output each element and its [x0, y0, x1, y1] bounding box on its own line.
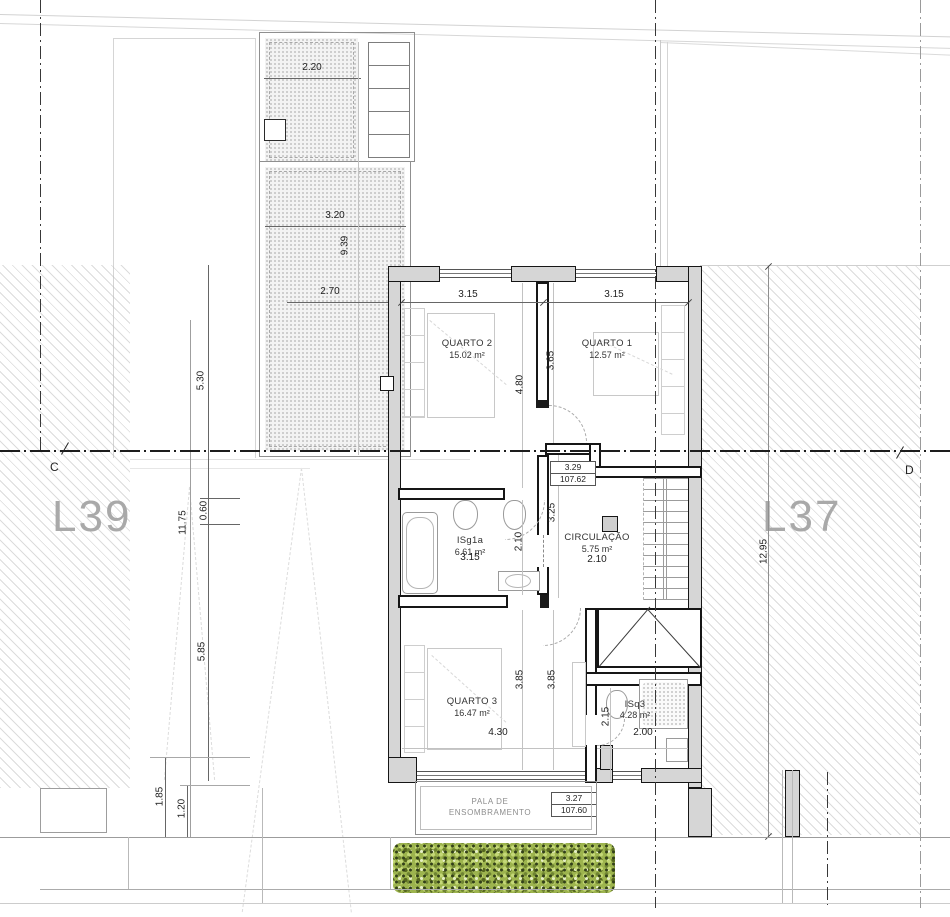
- dim-patio-mid: 3.20: [315, 210, 355, 221]
- dim-stair-side: 3.25: [547, 493, 558, 533]
- level-marker-upper: 3.29 107.62: [550, 461, 596, 486]
- stair-newel-post: [602, 516, 618, 532]
- axis-line-lower-right: [827, 772, 828, 905]
- stair-center-rail: [666, 478, 667, 600]
- window-quarto3: [417, 771, 587, 780]
- room-label-isg1a: ISg1a: [430, 535, 510, 546]
- canopy-label-line1: PALA DE: [400, 797, 580, 806]
- wall-right: [688, 266, 702, 788]
- room-area-quarto3: 16.47 m²: [422, 708, 522, 718]
- yard-line: [130, 468, 310, 469]
- desk-quarto3: [572, 662, 586, 747]
- wall-q3-right: [585, 608, 597, 783]
- door-jamb: [536, 400, 549, 408]
- door-jamb: [540, 595, 549, 608]
- wall-bath-bottom: [398, 595, 508, 608]
- dim-bottom-b: 1.20: [177, 789, 188, 829]
- dim-line: [265, 226, 406, 227]
- window-quarto1: [576, 269, 656, 278]
- room-label-isq3: ISq3: [600, 699, 670, 710]
- room-label-quarto1: QUARTO 1: [557, 338, 657, 349]
- door-opening-isq3: [584, 715, 598, 745]
- lot-label-l37: L37: [762, 492, 841, 542]
- dim-bath-side: 2.10: [514, 522, 525, 562]
- site-boundary-line: [0, 14, 950, 37]
- dim-line: [208, 265, 209, 498]
- sink-isq3: [666, 738, 688, 762]
- axis-line-right-boundary: [920, 0, 921, 908]
- dim-circ-width: 2.10: [577, 554, 617, 565]
- wardrobe-quarto2: [404, 308, 425, 418]
- dim-left-lower: 5.85: [197, 632, 208, 672]
- yard-outline: [113, 38, 256, 458]
- site-line: [390, 837, 391, 889]
- wall-left-marker-box: [380, 376, 394, 391]
- canopy-label-line2: ENSOMBRAMENTO: [400, 808, 580, 817]
- room-label-quarto3: QUARTO 3: [422, 696, 522, 707]
- room-area-circulacao: 5.75 m²: [537, 544, 657, 554]
- site-line: [262, 788, 263, 903]
- patio-upper: [265, 38, 358, 162]
- dim-line: [402, 748, 585, 749]
- level-elevation: 107.62: [550, 473, 596, 486]
- section-line-cd: [0, 450, 950, 452]
- site-line: [0, 837, 950, 838]
- floor-plan-canvas: L39 L37 2.20 3.20 9.39 2.70: [0, 0, 950, 917]
- lot-l37-top-line: [700, 265, 950, 266]
- dim-q3-width: 4.30: [478, 727, 518, 738]
- dim-line: [358, 42, 359, 455]
- yard-slope-line: [242, 468, 302, 912]
- dim-ext: [180, 785, 250, 786]
- room-area-isg1a: 6.61 m²: [430, 547, 510, 557]
- vanity-basin: [505, 574, 531, 588]
- lot-label-l39: L39: [52, 492, 131, 542]
- wall-top-pier-center: [511, 266, 576, 282]
- patio-planter-box: [264, 119, 286, 141]
- dim-q1-top: 3.15: [594, 289, 634, 300]
- stair-void-box: [597, 608, 702, 668]
- room-area-isq3: 4.28 m²: [600, 710, 670, 720]
- dim-q2-top: 3.15: [448, 289, 488, 300]
- section-marker-d: D: [905, 463, 914, 477]
- room-label-quarto2: QUARTO 2: [417, 338, 517, 349]
- site-line: [128, 837, 129, 889]
- wall-right-foot: [688, 788, 712, 837]
- wall-bottom-pier-left: [388, 757, 417, 783]
- lot-l37-hatch: [702, 266, 920, 835]
- lot-l39-entry-box: [40, 788, 107, 833]
- dim-patio-top: 2.20: [292, 62, 332, 73]
- section-marker-c: C: [50, 460, 59, 474]
- wall-stair-top: [589, 466, 702, 478]
- axis-line-center: [655, 0, 656, 908]
- toilet: [453, 500, 478, 530]
- dim-right-total: 12.95: [759, 529, 770, 575]
- site-line: [792, 770, 793, 903]
- wall-left: [388, 266, 401, 783]
- dim-ext: [150, 757, 250, 758]
- lot-divider-line: [667, 42, 668, 266]
- stair-center-rail: [663, 478, 664, 600]
- wall-q2-bottom: [398, 488, 505, 500]
- site-line: [0, 903, 950, 904]
- dim-patio-vert: 9.39: [340, 226, 351, 266]
- site-line: [40, 889, 950, 890]
- yard-line: [130, 459, 470, 460]
- dim-bottom-a: 1.85: [155, 777, 166, 817]
- room-area-quarto1: 12.57 m²: [557, 350, 657, 360]
- dim-q3-side-b: 3.85: [547, 660, 558, 700]
- wall-top-pier-left: [388, 266, 440, 282]
- dim-isq3-width: 2.00: [623, 727, 663, 738]
- window-isq3: [613, 771, 641, 780]
- door-arc-bath-hall: [465, 460, 545, 540]
- dim-line: [190, 320, 191, 837]
- lot-divider-line: [660, 40, 661, 266]
- dim-q3-side-a: 3.85: [515, 660, 526, 700]
- window-quarto2: [440, 269, 511, 278]
- dim-line: [264, 78, 361, 79]
- dim-patio-low: 2.70: [310, 286, 350, 297]
- wall-bottom-pier-right: [641, 768, 702, 783]
- room-label-circulacao: CIRCULAÇÃO: [537, 532, 657, 543]
- room-area-quarto2: 15.02 m²: [417, 350, 517, 360]
- dim-left-upper: 5.30: [196, 361, 207, 401]
- site-line: [782, 770, 783, 903]
- axis-line-left: [40, 0, 41, 452]
- dim-line: [208, 524, 209, 781]
- dim-q1-side: 3.65: [546, 341, 557, 381]
- dim-q2-side: 4.80: [515, 365, 526, 405]
- hedge-planting: [393, 843, 615, 893]
- yard-slope-line: [301, 468, 352, 912]
- dim-left-total: 11.75: [178, 500, 189, 546]
- exterior-stair: [368, 42, 410, 158]
